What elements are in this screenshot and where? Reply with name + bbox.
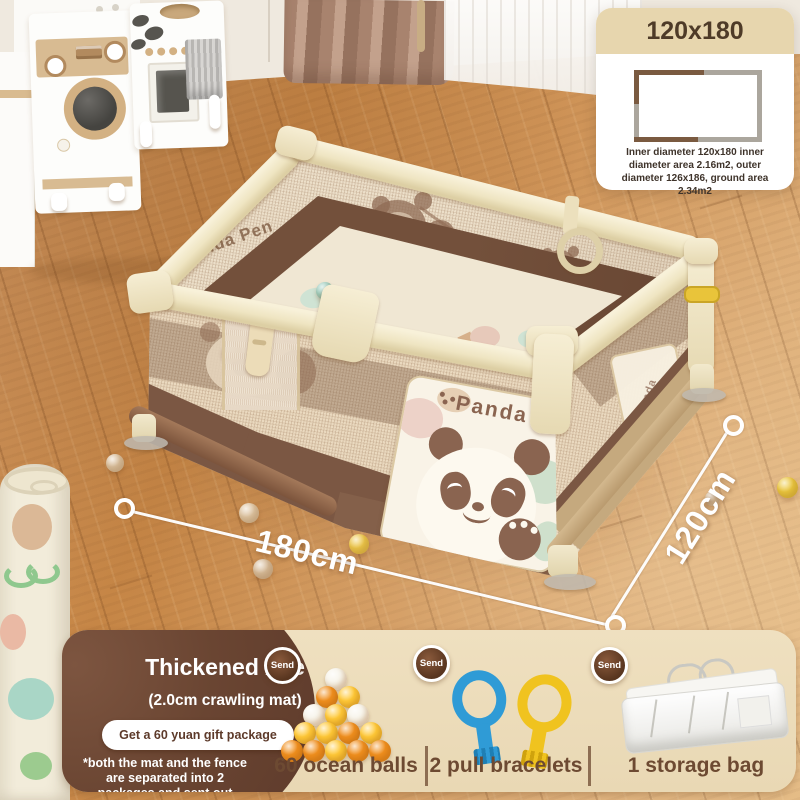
suction-cup — [124, 436, 168, 450]
mat-pattern — [8, 678, 54, 720]
dimension-endpoint — [114, 498, 135, 519]
size-diagram — [634, 70, 762, 142]
rolled-crawling-mat — [0, 464, 70, 800]
corner-post-front — [529, 333, 574, 435]
size-title: 120x180 — [596, 8, 794, 54]
mat-pattern — [12, 504, 52, 550]
mat-pattern — [26, 560, 60, 584]
mat-pattern — [20, 752, 52, 780]
divider — [588, 746, 591, 786]
diagram-edge — [634, 137, 698, 142]
gift-item-label: 2 pull bracelets — [406, 754, 606, 778]
dimension-endpoint — [723, 415, 744, 436]
send-badge: Send — [413, 645, 450, 682]
panda-smile — [461, 502, 492, 526]
suction-cup — [544, 574, 596, 590]
hanging-ring-toy — [557, 228, 603, 274]
panda-eye — [499, 486, 518, 503]
ring-clip — [684, 286, 720, 303]
mat-roll-top — [4, 467, 70, 495]
gift-panel: Thickened xpe (2.0cm crawling mat) Get a… — [62, 630, 796, 792]
corner-cap-left — [125, 269, 174, 315]
playpen-foot — [548, 545, 578, 577]
panda-print-icon — [200, 322, 220, 342]
diagram-edge — [634, 70, 704, 75]
paw-toe — [509, 521, 517, 529]
pull-ring — [513, 670, 576, 736]
gift-item-label: 1 storage bag — [596, 754, 796, 778]
paw-toe — [530, 526, 538, 534]
bag-label-patch — [737, 695, 772, 728]
product-photo: Panda Pen — [0, 0, 800, 800]
door-brand-text: Panda — [454, 392, 530, 428]
diagram-edge — [634, 70, 639, 104]
ocean-ball — [777, 477, 798, 498]
corner-cap-right — [684, 238, 718, 264]
ball-pyramid-icon — [270, 660, 402, 760]
mat-roll-spiral — [30, 480, 58, 494]
strap-slot — [252, 339, 267, 346]
suction-cup — [682, 388, 726, 402]
size-info-card: 120x180 Inner diameter 120x180 inner dia… — [596, 8, 794, 190]
gift-package-button: Get a 60 yuan gift package — [102, 720, 294, 750]
panda-eye — [447, 482, 463, 496]
paw-print-icon — [443, 399, 449, 405]
pull-ring — [448, 667, 510, 732]
corner-post-right — [688, 246, 714, 376]
mat-pattern — [0, 614, 26, 650]
panda-eye-patch — [485, 473, 531, 523]
ocean-ball — [106, 454, 124, 472]
size-description: Inner diameter 120x180 inner diameter ar… — [608, 146, 782, 198]
promo-note: *both the mat and the fence are separate… — [76, 756, 254, 792]
paw-toe — [520, 520, 528, 528]
ocean-ball — [239, 503, 259, 523]
storage-bag-icon — [613, 651, 794, 764]
